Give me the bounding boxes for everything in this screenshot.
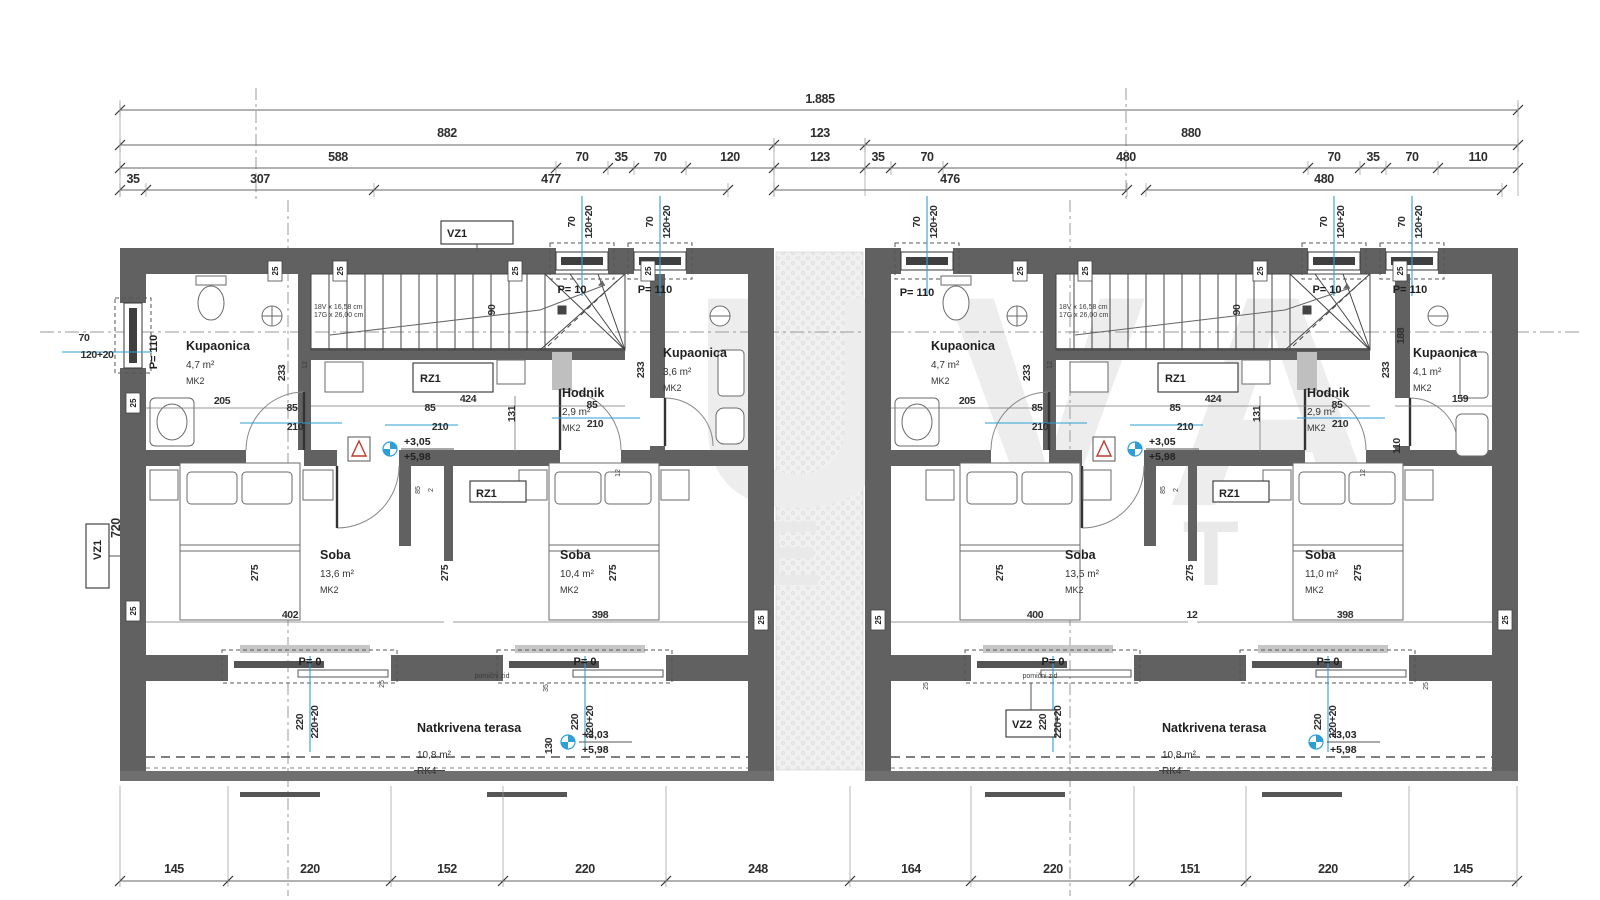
- window-dims-label: 120+20: [1413, 205, 1425, 238]
- slider-dims-label: 220+20: [584, 705, 596, 738]
- room-class-label: MK2: [186, 376, 205, 386]
- wall-thickness-marker: 25: [126, 601, 140, 621]
- room-class-label: MK2: [663, 383, 682, 393]
- dims-bottom-label: 145: [1453, 862, 1473, 876]
- interior-dims-label: 210: [287, 421, 304, 433]
- slider-dims-label: 220: [294, 713, 306, 730]
- code-box-rz1: RZ1: [470, 481, 526, 502]
- opening-codes-label: P= 0: [1042, 656, 1065, 668]
- interior-dims-label: 424: [460, 393, 477, 405]
- room-class-label: MK2: [562, 423, 581, 433]
- window-dims-label: 120+20: [81, 349, 114, 361]
- opening-codes-label: P= 10: [557, 284, 586, 296]
- interior-dims-label: 720: [109, 518, 123, 538]
- wall-thickness-value: 25: [1501, 615, 1510, 624]
- slider-dims-label: 220: [1037, 713, 1049, 730]
- level-value-lower: +5,98: [582, 744, 609, 756]
- wall-thickness-marker: 25: [1393, 261, 1407, 281]
- opening-codes-label: P= 0: [1317, 656, 1340, 668]
- wall-thickness-value: 25: [874, 615, 883, 624]
- stairs-spec-label: 18V x 16,58 cm: [1059, 304, 1108, 311]
- interior-dims-label: 90: [486, 304, 498, 315]
- room-name-label: Hodnik: [1307, 386, 1349, 400]
- terrace-area-label: 10,8 m²: [417, 750, 452, 761]
- interior-dims-label: 210: [1332, 418, 1349, 430]
- window-dims-label: 70: [911, 216, 923, 227]
- interior-dims-label: 85: [1170, 402, 1181, 414]
- opening-codes-label: P= 110: [900, 287, 935, 299]
- wall-thickness-marker: 25: [268, 261, 282, 281]
- level-value-lower: +5,98: [1149, 451, 1176, 463]
- level-value-upper: +3,05: [404, 436, 431, 448]
- interior-dims-label: 188: [1395, 327, 1407, 344]
- interior-dims-label: 12: [1360, 469, 1367, 477]
- code-box-label: VZ2: [1012, 719, 1032, 731]
- interior-dims-label: 210: [587, 418, 604, 430]
- interior-dims-label: 130: [543, 737, 555, 754]
- slider-dims-label: 220+20: [1327, 705, 1339, 738]
- room-name-label: Soba: [560, 548, 592, 562]
- dims-row3-label: 70: [653, 150, 667, 164]
- room-area-label: 4,1 m²: [1413, 367, 1442, 378]
- wall-thickness-value: 25: [1396, 266, 1405, 275]
- code-box-label: RZ1: [1219, 488, 1240, 500]
- interior-dims-label: 12: [302, 361, 309, 369]
- interior-dims-label: 85: [287, 402, 298, 414]
- dims-bottom-label: 220: [300, 862, 320, 876]
- interior-dims-label: 402: [282, 609, 299, 621]
- stairs-spec-label: 18V x 16,58 cm: [314, 304, 363, 311]
- dims-row3-label: 35: [614, 150, 628, 164]
- room-class-label: MK2: [1065, 585, 1084, 595]
- code-box-rz1: RZ1: [413, 363, 493, 392]
- dims-bottom-label: 164: [901, 862, 921, 876]
- interior-dims-label: 398: [1337, 609, 1354, 621]
- interior-dims-label: 25: [1423, 682, 1430, 690]
- dims-row3-label: 120: [720, 150, 740, 164]
- interior-dims-label: 110: [1391, 438, 1403, 454]
- wall-thickness-marker: 25: [641, 261, 655, 281]
- interior-dims-label: 275: [607, 564, 619, 581]
- room-class-label: MK2: [1413, 383, 1432, 393]
- interior-dims-label: 85: [415, 486, 422, 494]
- interior-dims-label: 233: [635, 361, 647, 378]
- slider-dims-label: 220: [569, 713, 581, 730]
- interior-dims-label: 85: [1032, 402, 1043, 414]
- floor-plan-canvas: UVA EST: [0, 0, 1600, 900]
- code-box-label: RZ1: [476, 488, 497, 500]
- interior-dims-label: 275: [994, 564, 1006, 581]
- room-area-label: 11,0 m²: [1305, 569, 1339, 580]
- room-name-label: Soba: [1305, 548, 1337, 562]
- wall-thickness-marker: 25: [754, 610, 768, 630]
- interior-dims-label: 210: [1032, 421, 1049, 433]
- interior-dims-label: 205: [959, 395, 976, 407]
- code-box-vz1: VZ1: [86, 524, 109, 588]
- room-class-label: MK2: [560, 585, 579, 595]
- window-dims-label: 70: [79, 332, 90, 344]
- room-class-label: MK2: [320, 585, 339, 595]
- dims-row3-label: 70: [1405, 150, 1419, 164]
- interior-dims-label: 398: [592, 609, 609, 621]
- stairs-spec-label: 17G x 26,00 cm: [314, 312, 364, 319]
- interior-dims-label: 210: [1177, 421, 1194, 433]
- wall-thickness-value: 25: [336, 266, 345, 275]
- wall-thickness-marker: 25: [333, 261, 347, 281]
- room-class-label: MK2: [931, 376, 950, 386]
- dims-row3-label: 70: [1327, 150, 1341, 164]
- opening-codes-label: P= 110: [638, 284, 673, 296]
- opening-codes-label: P= 0: [299, 656, 322, 668]
- window-dims-label: 120+20: [583, 205, 595, 238]
- interior-dims-label: 131: [1251, 405, 1263, 422]
- room-name-label: Soba: [320, 548, 352, 562]
- terrace-name-label: Natkrivena terasa: [417, 721, 522, 735]
- dims-row3-label: 123: [810, 150, 830, 164]
- interior-dims-label: 35: [543, 684, 550, 692]
- interior-dims-label: 2: [1173, 488, 1180, 492]
- wall-thickness-value: 25: [644, 266, 653, 275]
- code-box-vz1: VZ1: [441, 221, 513, 244]
- code-box-label: VZ1: [447, 228, 467, 240]
- wall-thickness-value: 25: [1256, 266, 1265, 275]
- interior-dims-label: 424: [1205, 393, 1222, 405]
- wall-thickness-value: 25: [757, 615, 766, 624]
- room-name-label: Hodnik: [562, 386, 604, 400]
- interior-dims-label: 2: [428, 488, 435, 492]
- wall-thickness-marker: 25: [508, 261, 522, 281]
- room-area-label: 4,7 m²: [186, 360, 215, 371]
- dims-bottom-label: 248: [748, 862, 768, 876]
- dims-bottom-label: 220: [1043, 862, 1063, 876]
- dims-row3-label: 70: [920, 150, 934, 164]
- window-dims-label: 70: [1396, 216, 1408, 227]
- dims-bottom-label: 220: [1318, 862, 1338, 876]
- room-area-label: 10,4 m²: [560, 569, 595, 580]
- wall-thickness-value: 25: [511, 266, 520, 275]
- window-dims-label: 120+20: [661, 205, 673, 238]
- room-area-label: 4,7 m²: [931, 360, 960, 371]
- floor-plan-page: UVA EST: [0, 0, 1600, 900]
- room-area-label: 2,9 m²: [1307, 407, 1336, 418]
- notes-label: pomični zid: [474, 673, 509, 680]
- room-area-label: 13,5 m²: [1065, 569, 1100, 580]
- interior-dims-label: 275: [249, 564, 261, 581]
- opening-codes-label: P= 10: [1312, 284, 1341, 296]
- room-class-label: MK2: [1307, 423, 1326, 433]
- slider-dims-label: 220: [1312, 713, 1324, 730]
- terrace-area-label: 10,8 m²: [1162, 750, 1197, 761]
- wall-thickness-marker: 25: [126, 393, 140, 413]
- room-area-label: 13,6 m²: [320, 569, 355, 580]
- dims-row4-label: 480: [1314, 172, 1334, 186]
- slider-dims-label: 220+20: [309, 705, 321, 738]
- opening-codes-label: P= 110: [1393, 284, 1428, 296]
- level-value-upper: +3,05: [1149, 436, 1176, 448]
- code-box-label: RZ1: [1165, 373, 1186, 385]
- window-dims-label: 70: [1318, 216, 1330, 227]
- level-value-lower: +5,98: [1330, 744, 1357, 756]
- dims-row4-label: 476: [940, 172, 960, 186]
- interior-dims-label: 275: [439, 564, 451, 581]
- dims-row3-label: 480: [1116, 150, 1136, 164]
- room-area-label: 2,9 m²: [562, 407, 591, 418]
- window-dims-label: 120+20: [1335, 205, 1347, 238]
- code-box-rz1: RZ1: [1213, 481, 1269, 502]
- wall-thickness-value: 25: [129, 606, 138, 615]
- terrace-name-label: Natkrivena terasa: [1162, 721, 1267, 735]
- dims-bottom-label: 152: [437, 862, 457, 876]
- interior-dims-label: 90: [1231, 304, 1243, 315]
- room-name-label: Kupaonica: [663, 346, 728, 360]
- code-box-label: RZ1: [420, 373, 441, 385]
- wall-thickness-marker: 25: [1013, 261, 1027, 281]
- interior-dims-label: 85: [1160, 486, 1167, 494]
- wall-thickness-value: 25: [271, 266, 280, 275]
- interior-dims-label: 233: [276, 364, 288, 381]
- room-name-label: Soba: [1065, 548, 1097, 562]
- interior-dims-label: 205: [214, 395, 231, 407]
- window-dims-label: 70: [644, 216, 656, 227]
- wall-thickness-marker: 25: [1253, 261, 1267, 281]
- interior-dims-label: 210: [432, 421, 449, 433]
- wall-thickness-marker: 25: [1498, 610, 1512, 630]
- dims-row3-label: 588: [328, 150, 348, 164]
- interior-dims-label: 12: [1047, 361, 1054, 369]
- notes-label: pomični zid: [1022, 673, 1057, 680]
- interior-dims-label: 233: [1380, 361, 1392, 378]
- dims-row4-label: 477: [541, 172, 561, 186]
- room-class-label: MK2: [1305, 585, 1324, 595]
- dims-row3-label: 70: [575, 150, 589, 164]
- dims-row3-label: 35: [871, 150, 885, 164]
- code-box-rz1: RZ1: [1158, 363, 1238, 392]
- interior-dims-label: 85: [425, 402, 436, 414]
- terrace-note-label: RK4: [1162, 766, 1182, 777]
- stairs-spec-label: 17G x 26,00 cm: [1059, 312, 1109, 319]
- interior-dims-label: 275: [1352, 564, 1364, 581]
- interior-dims-label: 131: [506, 405, 518, 422]
- level-value-lower: +5,98: [404, 451, 431, 463]
- wall-thickness-value: 25: [1081, 266, 1090, 275]
- room-name-label: Kupaonica: [186, 339, 251, 353]
- window-dims-label: 120+20: [928, 205, 940, 238]
- terrace-note-label: RK4: [417, 766, 437, 777]
- interior-dims-label: 12: [615, 469, 622, 477]
- room-area-label: 3,6 m²: [663, 367, 692, 378]
- room-name-label: Kupaonica: [1413, 346, 1478, 360]
- room-name-label: Kupaonica: [931, 339, 996, 353]
- interior-dims-label: 159: [1452, 393, 1469, 405]
- dims-row1-label: 1.885: [805, 92, 835, 106]
- dims-row3-label: 110: [1469, 150, 1488, 164]
- window-dims-label: 70: [566, 216, 578, 227]
- code-box-label: VZ1: [92, 540, 104, 560]
- interior-dims-label: 25: [379, 680, 386, 688]
- wall-thickness-marker: 25: [871, 610, 885, 630]
- opening-codes-label: P= 110: [148, 335, 160, 370]
- dims-bottom-label: 220: [575, 862, 595, 876]
- interior-dims-label: 12: [1187, 609, 1198, 621]
- interior-dims-label: 25: [923, 682, 930, 690]
- dims-row2-label: 880: [1181, 126, 1201, 140]
- interior-dims-label: 275: [1184, 564, 1196, 581]
- slider-dims-label: 220+20: [1052, 705, 1064, 738]
- interior-dims-label: 233: [1021, 364, 1033, 381]
- opening-codes-label: P= 0: [574, 656, 597, 668]
- wall-thickness-value: 25: [1016, 266, 1025, 275]
- interior-dims-label: 400: [1027, 609, 1044, 621]
- wall-thickness-value: 25: [129, 398, 138, 407]
- dims-row3-label: 35: [1366, 150, 1380, 164]
- dims-bottom-label: 151: [1180, 862, 1200, 876]
- wall-thickness-marker: 25: [1078, 261, 1092, 281]
- dims-row4-label: 307: [250, 172, 270, 186]
- dims-row2-label: 882: [437, 126, 457, 140]
- dims-row2-label: 123: [810, 126, 830, 140]
- dims-bottom-label: 145: [164, 862, 184, 876]
- dims-row4-label: 35: [126, 172, 140, 186]
